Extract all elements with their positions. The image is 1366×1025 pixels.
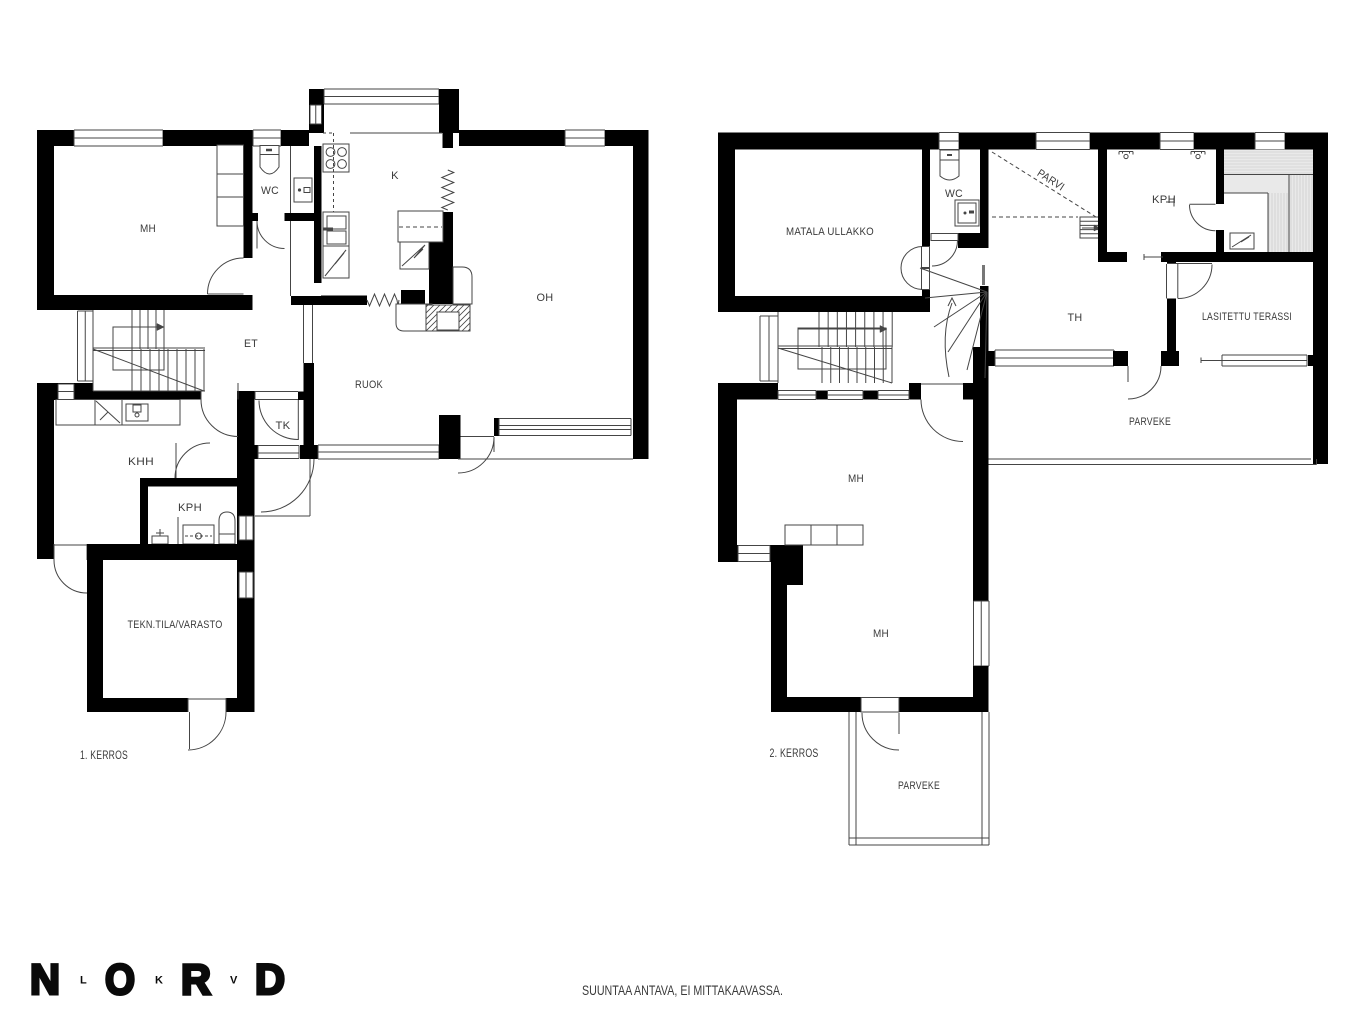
svg-text:D: D [255, 956, 285, 1004]
svg-text:MATALA ULLAKKO: MATALA ULLAKKO [786, 226, 874, 238]
svg-text:WC: WC [945, 188, 963, 200]
svg-text:1. KERROS: 1. KERROS [80, 748, 128, 762]
svg-text:MH: MH [848, 473, 864, 485]
svg-text:MH: MH [873, 628, 889, 640]
svg-text:TH: TH [1068, 312, 1083, 324]
svg-text:WC: WC [261, 185, 279, 197]
svg-text:MH: MH [140, 223, 156, 235]
svg-text:K: K [391, 170, 399, 182]
svg-text:PARVEKE: PARVEKE [898, 780, 940, 792]
svg-text:2. KERROS: 2. KERROS [770, 746, 819, 760]
svg-text:N: N [30, 956, 60, 1004]
svg-text:TEKN.TILA/VARASTO: TEKN.TILA/VARASTO [128, 619, 223, 631]
svg-text:KPH: KPH [1152, 194, 1176, 206]
svg-text:SUUNTAA ANTAVA, EI MITTAKAAVAS: SUUNTAA ANTAVA, EI MITTAKAAVASSA. [582, 983, 783, 998]
svg-text:KHH: KHH [128, 456, 154, 468]
svg-text:OH: OH [537, 292, 554, 304]
svg-text:ET: ET [244, 338, 258, 350]
svg-text:RUOK: RUOK [355, 379, 383, 391]
svg-text:R: R [181, 956, 211, 1004]
svg-text:LASITETTU TERASSI: LASITETTU TERASSI [1202, 311, 1292, 323]
svg-text:TK: TK [276, 420, 291, 432]
svg-text:K: K [155, 975, 163, 987]
svg-text:PARVEKE: PARVEKE [1129, 416, 1171, 428]
svg-text:V: V [230, 975, 238, 987]
svg-text:O: O [105, 956, 135, 1004]
svg-text:KPH: KPH [178, 502, 202, 514]
svg-text:L: L [80, 975, 87, 987]
